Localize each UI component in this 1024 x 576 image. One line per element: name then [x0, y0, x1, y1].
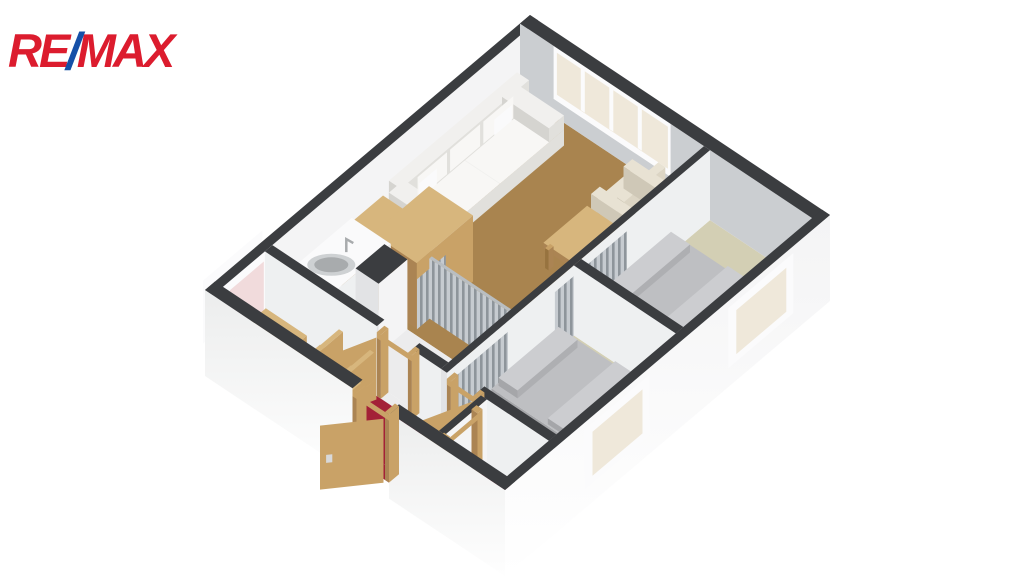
entrance-door: [320, 419, 384, 490]
floorplan-page: RE/MAX: [0, 0, 1024, 576]
floorplan-3d-render: [0, 0, 1024, 576]
